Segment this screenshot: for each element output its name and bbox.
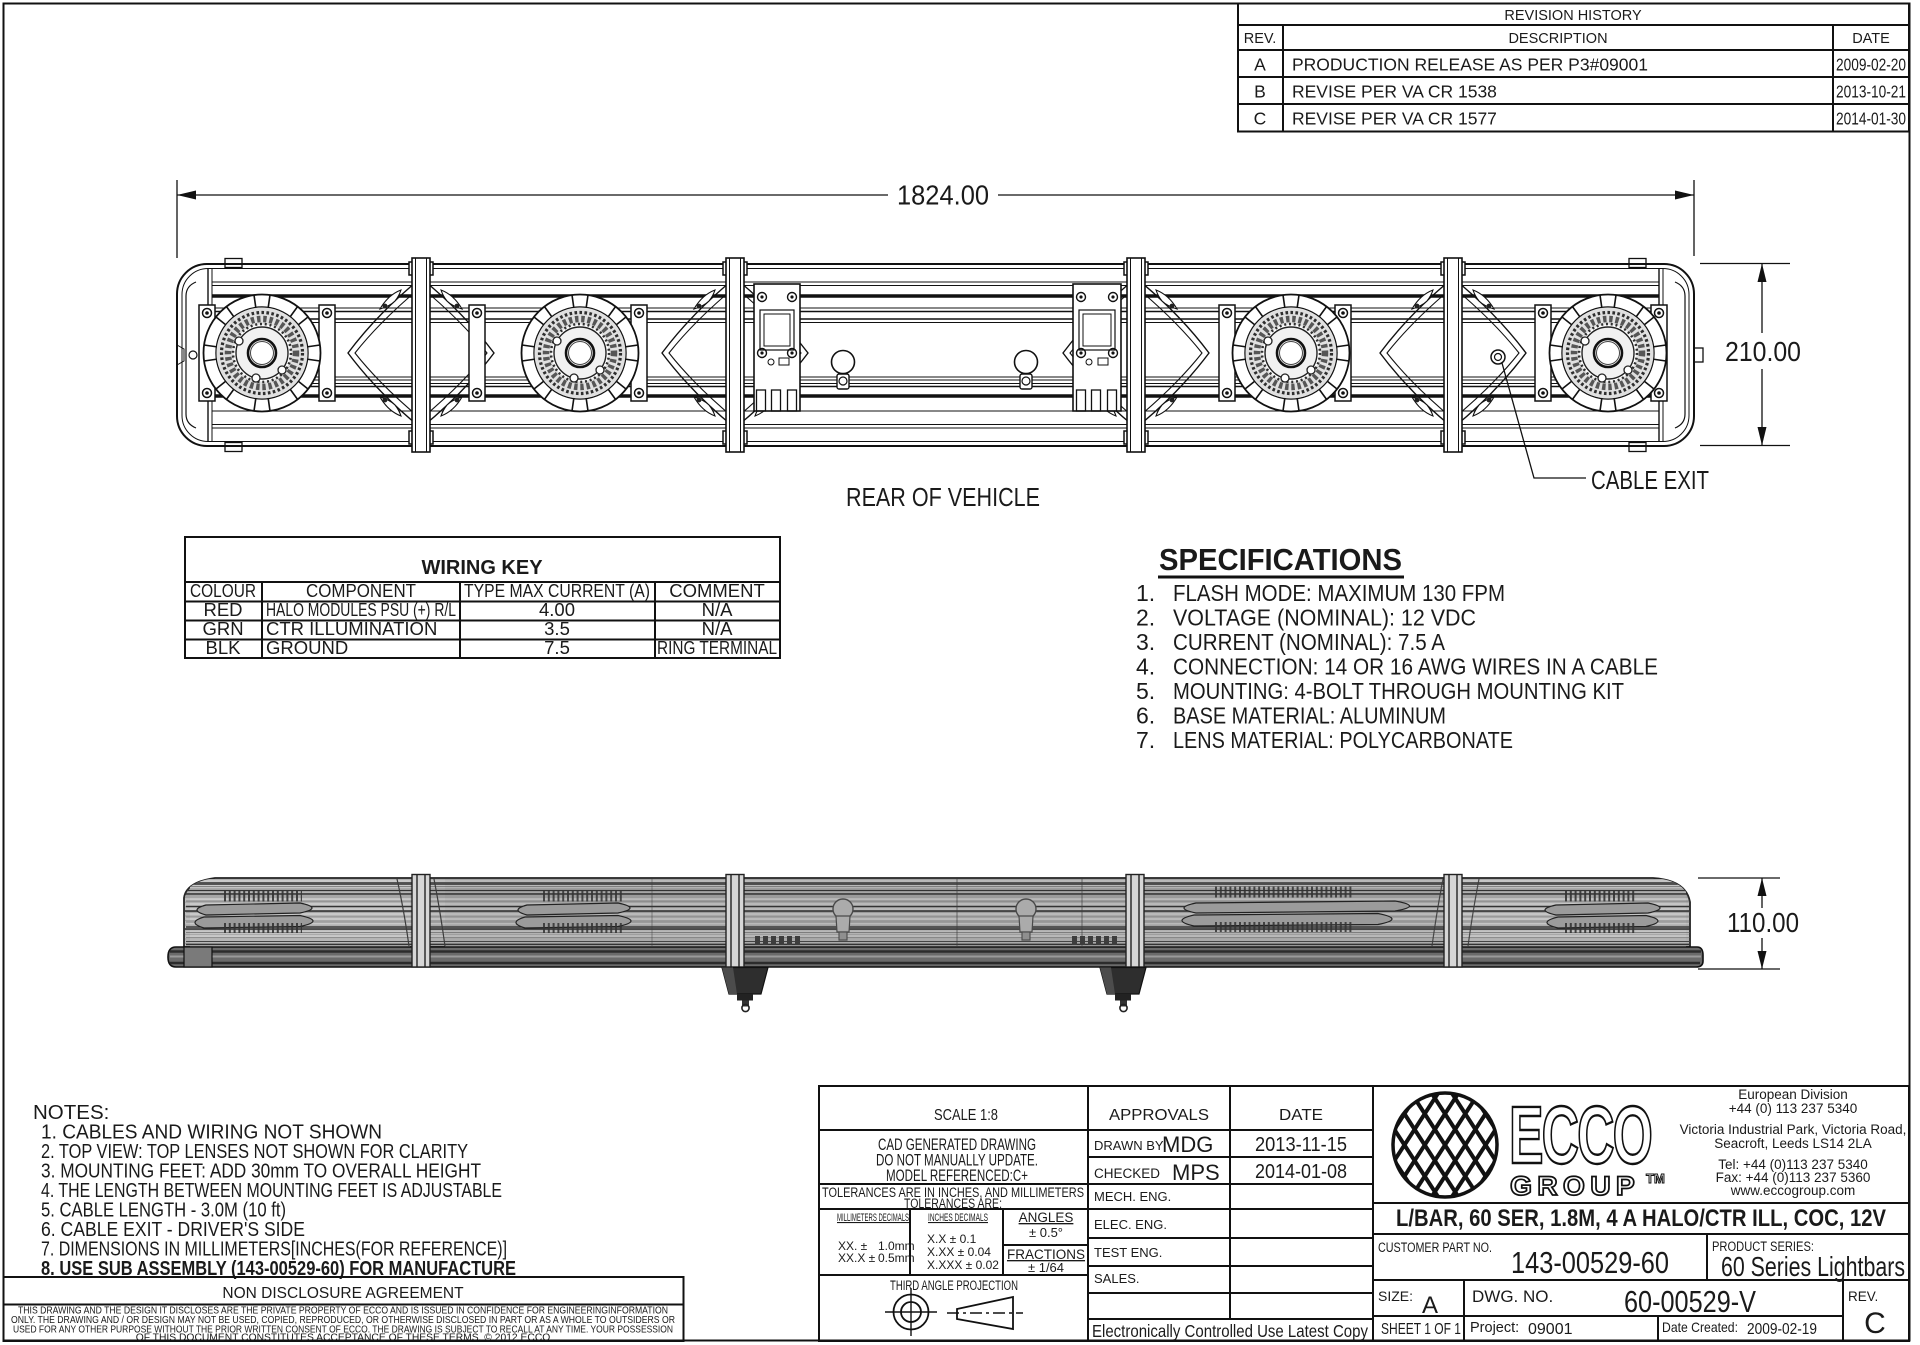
svg-text:SHEET 1 OF 1: SHEET 1 OF 1 — [1381, 1321, 1461, 1338]
svg-text:C: C — [1864, 1307, 1886, 1340]
svg-text:REV.: REV. — [1848, 1289, 1878, 1304]
svg-text:MODEL REFERENCED:C+: MODEL REFERENCED:C+ — [886, 1166, 1028, 1185]
svg-text:B: B — [1254, 82, 1266, 102]
svg-text:SALES.: SALES. — [1094, 1271, 1140, 1286]
svg-text:MPS: MPS — [1172, 1160, 1220, 1185]
svg-text:ANGLES: ANGLES — [1019, 1210, 1074, 1225]
svg-text:HALO MODULES PSU (+) R/L: HALO MODULES PSU (+) R/L — [266, 599, 456, 620]
svg-text:1.: 1. — [1136, 580, 1155, 606]
svg-text:L/BAR, 60 SER, 1.8M, 4 A HALO/: L/BAR, 60 SER, 1.8M, 4 A HALO/CTR ILL, C… — [1396, 1205, 1886, 1232]
svg-text:Electronically Controlled Use: Electronically Controlled Use Latest Cop… — [1092, 1321, 1368, 1341]
svg-text:REAR OF VEHICLE: REAR OF VEHICLE — [846, 482, 1040, 512]
svg-text:4.: 4. — [1136, 654, 1155, 680]
svg-text:Seacroft, Leeds LS14 2LA: Seacroft, Leeds LS14 2LA — [1714, 1136, 1872, 1151]
svg-text:MDG: MDG — [1162, 1132, 1213, 1157]
svg-text:OF THIS DOCUMENT CONSTITUTES A: OF THIS DOCUMENT CONSTITUTES ACCEPTANCE … — [136, 1333, 551, 1344]
svg-text:COLOUR: COLOUR — [190, 580, 256, 601]
svg-text:www.eccogroup.com: www.eccogroup.com — [1730, 1183, 1856, 1198]
svg-text:+44 (0) 113 237 5340: +44 (0) 113 237 5340 — [1729, 1101, 1857, 1116]
svg-text:2009-02-19: 2009-02-19 — [1747, 1321, 1817, 1338]
svg-text:6.: 6. — [1136, 703, 1155, 729]
svg-text:143-00529-60: 143-00529-60 — [1511, 1245, 1669, 1280]
svg-text:REVISE PER VA CR 1538: REVISE PER VA CR 1538 — [1292, 82, 1497, 102]
svg-text:DATE: DATE — [1279, 1107, 1323, 1124]
svg-text:DRAWN BY: DRAWN BY — [1094, 1138, 1164, 1153]
svg-text:110.00: 110.00 — [1727, 907, 1799, 938]
svg-text:DWG. NO.: DWG. NO. — [1472, 1287, 1553, 1306]
svg-text:SIZE:: SIZE: — [1378, 1288, 1413, 1304]
svg-text:COMMENT: COMMENT — [669, 580, 765, 601]
svg-text:MOUNTING: 4-BOLT THROUGH MOUNT: MOUNTING: 4-BOLT THROUGH MOUNTING KIT — [1173, 678, 1624, 704]
svg-text:TEST ENG.: TEST ENG. — [1094, 1245, 1162, 1260]
svg-text:RED: RED — [203, 599, 242, 620]
svg-text:C: C — [1254, 109, 1267, 129]
svg-text:DATE: DATE — [1852, 31, 1890, 47]
svg-text:SCALE 1:8: SCALE 1:8 — [934, 1107, 998, 1124]
svg-text:60-00529-V: 60-00529-V — [1624, 1284, 1756, 1319]
svg-text:2.: 2. — [1136, 605, 1155, 631]
svg-text:210.00: 210.00 — [1725, 336, 1801, 367]
svg-text:X.X ± 0.1: X.X ± 0.1 — [927, 1232, 977, 1246]
svg-text:GROUND: GROUND — [266, 637, 348, 658]
svg-text:ELEC. ENG.: ELEC. ENG. — [1094, 1217, 1167, 1232]
svg-text:CUSTOMER PART NO.: CUSTOMER PART NO. — [1378, 1240, 1492, 1255]
svg-text:CONNECTION: 14 OR 16 AWG WIRES: CONNECTION: 14 OR 16 AWG WIRES IN A CABL… — [1173, 654, 1658, 680]
svg-text:GRN: GRN — [202, 618, 243, 639]
svg-text:COMPONENT: COMPONENT — [306, 580, 416, 601]
svg-text:N/A: N/A — [702, 599, 734, 620]
svg-text:A: A — [1422, 1292, 1438, 1319]
svg-text:7.5: 7.5 — [544, 637, 570, 658]
svg-text:N/A: N/A — [702, 618, 734, 639]
svg-text:± 0.5°: ± 0.5° — [1029, 1225, 1063, 1240]
svg-text:X.XXX ± 0.02: X.XXX ± 0.02 — [927, 1258, 999, 1272]
svg-text:± 1/64: ± 1/64 — [1028, 1260, 1064, 1275]
svg-text:2014-01-30: 2014-01-30 — [1836, 109, 1906, 129]
svg-text:SPECIFICATIONS: SPECIFICATIONS — [1159, 542, 1402, 577]
svg-text:BASE MATERIAL: ALUMINUM: BASE MATERIAL: ALUMINUM — [1173, 703, 1446, 729]
svg-text:XX.X ±: XX.X ± — [838, 1251, 876, 1265]
svg-text:INCHES DECIMALS: INCHES DECIMALS — [928, 1212, 988, 1224]
svg-text:TOLERANCES ARE:: TOLERANCES ARE: — [904, 1196, 1002, 1211]
svg-text:7.: 7. — [1136, 727, 1155, 753]
svg-text:REVISION HISTORY: REVISION HISTORY — [1504, 8, 1642, 24]
svg-text:GROUP: GROUP — [1510, 1171, 1640, 1201]
svg-text:DESCRIPTION: DESCRIPTION — [1508, 31, 1607, 47]
svg-text:4.00: 4.00 — [539, 599, 575, 620]
svg-text:RING TERMINAL: RING TERMINAL — [657, 637, 777, 658]
svg-text:Project:: Project: — [1470, 1320, 1519, 1336]
svg-text:NON DISCLOSURE AGREEMENT: NON DISCLOSURE AGREEMENT — [222, 1285, 464, 1302]
svg-text:Date Created:: Date Created: — [1662, 1319, 1738, 1335]
svg-text:TYPE MAX CURRENT (A): TYPE MAX CURRENT (A) — [464, 580, 650, 601]
svg-text:1824.00: 1824.00 — [897, 180, 989, 211]
svg-text:2014-01-08: 2014-01-08 — [1255, 1161, 1347, 1183]
svg-text:LENS MATERIAL: POLYCARBONATE: LENS MATERIAL: POLYCARBONATE — [1173, 727, 1513, 753]
svg-text:CURRENT (NOMINAL): 7.5 A: CURRENT (NOMINAL): 7.5 A — [1173, 629, 1446, 655]
svg-text:APPROVALS: APPROVALS — [1109, 1107, 1209, 1124]
svg-text:TM: TM — [1646, 1171, 1665, 1186]
svg-text:3.: 3. — [1136, 629, 1155, 655]
svg-text:60 Series Lightbars: 60 Series Lightbars — [1721, 1251, 1905, 1282]
svg-text:REV.: REV. — [1244, 31, 1277, 47]
svg-text:MILLIMETERS DECIMALS: MILLIMETERS DECIMALS — [837, 1212, 909, 1224]
svg-text:ECCO: ECCO — [1509, 1090, 1651, 1181]
svg-text:CTR ILLUMINATION: CTR ILLUMINATION — [266, 618, 437, 639]
svg-text:PRODUCTION RELEASE AS PER P3#0: PRODUCTION RELEASE AS PER P3#09001 — [1292, 55, 1648, 75]
svg-text:REVISE PER VA CR 1577: REVISE PER VA CR 1577 — [1292, 109, 1497, 129]
svg-text:THIRD ANGLE PROJECTION: THIRD ANGLE PROJECTION — [890, 1278, 1018, 1293]
svg-text:CABLE EXIT: CABLE EXIT — [1591, 465, 1709, 495]
svg-text:0.5mm: 0.5mm — [878, 1251, 915, 1265]
svg-text:FLASH MODE: MAXIMUM 130 FPM: FLASH MODE: MAXIMUM 130 FPM — [1173, 580, 1505, 606]
svg-text:BLK: BLK — [206, 637, 242, 658]
svg-text:2009-02-20: 2009-02-20 — [1836, 55, 1906, 75]
svg-text:Victoria Industrial Park, Vict: Victoria Industrial Park, Victoria Road, — [1680, 1122, 1907, 1137]
svg-text:VOLTAGE (NOMINAL): 12 VDC: VOLTAGE (NOMINAL): 12 VDC — [1173, 605, 1476, 631]
svg-text:A: A — [1254, 55, 1266, 75]
svg-text:2013-11-15: 2013-11-15 — [1255, 1134, 1347, 1156]
svg-text:2013-10-21: 2013-10-21 — [1836, 82, 1906, 102]
svg-text:5.: 5. — [1136, 678, 1155, 704]
svg-text:MECH. ENG.: MECH. ENG. — [1094, 1189, 1171, 1204]
svg-text:X.XX ± 0.04: X.XX ± 0.04 — [927, 1245, 991, 1259]
svg-text:European Division: European Division — [1738, 1087, 1848, 1102]
svg-text:WIRING KEY: WIRING KEY — [421, 557, 543, 579]
svg-text:09001: 09001 — [1528, 1321, 1573, 1338]
svg-text:CHECKED: CHECKED — [1094, 1166, 1160, 1181]
svg-text:3.5: 3.5 — [544, 618, 570, 639]
